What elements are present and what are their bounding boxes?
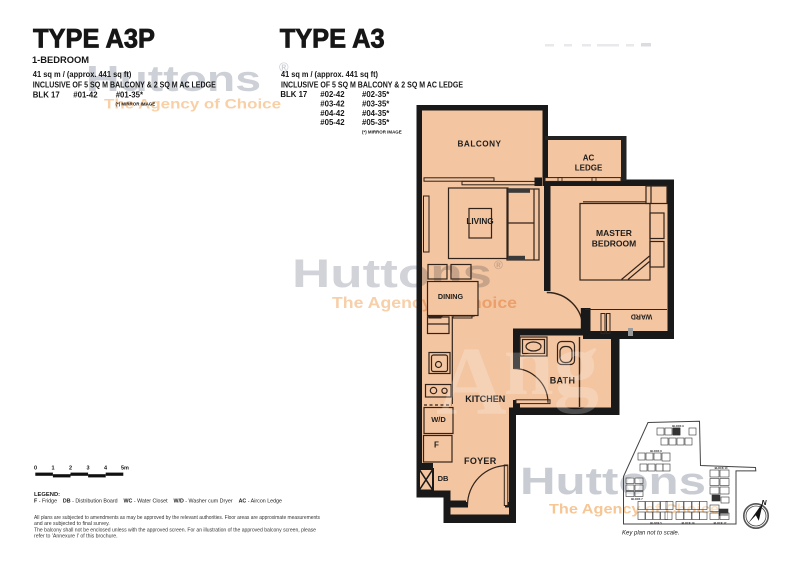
svg-text:#02-42: #02-42 [320,90,345,99]
svg-text:#05-35*: #05-35* [362,118,390,127]
svg-text:TYPE A3: TYPE A3 [280,24,385,54]
svg-text:#01-35*: #01-35* [116,90,144,99]
svg-text:F: F [434,441,439,450]
svg-text:BEDROOM: BEDROOM [592,239,636,249]
svg-text:FOYER: FOYER [464,456,497,466]
svg-text:BALCONY: BALCONY [458,140,502,149]
svg-text:0: 0 [34,466,37,472]
svg-text:DINING: DINING [438,292,464,301]
svg-text:The balcony shall not be enclo: The balcony shall not be enclosed unless… [34,527,316,533]
svg-text:2: 2 [69,466,72,472]
svg-text:LIVING: LIVING [466,217,493,226]
svg-text:1: 1 [52,466,55,472]
svg-text:®: ® [494,258,503,272]
svg-text:and are subjected to final sur: and are subjected to final survey. [34,521,110,527]
svg-text:BLOCK 19: BLOCK 19 [682,521,695,525]
svg-text:BLOCK 7: BLOCK 7 [631,497,643,501]
svg-text:#03-35*: #03-35* [362,99,390,108]
svg-text:BLOCK 5: BLOCK 5 [650,521,662,525]
svg-text:BLOCK 17: BLOCK 17 [714,521,727,525]
svg-text:F - Fridge DB - Distributio: F - Fridge DB - Distribution Board WC - … [34,498,282,504]
svg-text:DB: DB [438,474,449,483]
svg-text:LEGEND:: LEGEND: [34,492,60,498]
svg-text:#02-35*: #02-35* [362,90,390,99]
svg-text:Key plan not to scale.: Key plan not to scale. [622,531,679,537]
svg-text:INCLUSIVE OF 5 SQ M BALCONY &: INCLUSIVE OF 5 SQ M BALCONY & 2 SQ M AC … [281,81,463,90]
svg-text:1-BEDROOM: 1-BEDROOM [32,55,89,65]
svg-text:3: 3 [87,466,90,472]
svg-text:5m: 5m [121,466,129,472]
svg-text:#04-42: #04-42 [320,109,345,118]
svg-text:41 sq m / (approx. 441 sq ft): 41 sq m / (approx. 441 sq ft) [281,70,378,79]
svg-text:LEDGE: LEDGE [575,164,603,173]
svg-text:BLOCK 9: BLOCK 9 [672,424,684,428]
svg-text:MASTER: MASTER [596,228,632,238]
svg-text:BLOCK 10: BLOCK 10 [715,466,728,470]
svg-text:TYPE A3P: TYPE A3P [33,24,155,54]
svg-text:(*) MIRROR IMAGE: (*) MIRROR IMAGE [116,101,156,106]
svg-text:BLK 17: BLK 17 [33,90,60,99]
svg-text:#04-35*: #04-35* [362,109,390,118]
svg-text:All plans are subjected to ame: All plans are subjected to amendments as… [34,515,320,521]
svg-text:INCLUSIVE OF 5 SQ M BALCONY &: INCLUSIVE OF 5 SQ M BALCONY & 2 SQ M AC … [33,81,216,90]
svg-text:BLOCK 8: BLOCK 8 [650,449,662,453]
svg-text:#03-42: #03-42 [320,99,345,108]
svg-text:WARD: WARD [631,313,652,320]
svg-text:The Agency of Choice: The Agency of Choice [332,295,517,312]
svg-text:(*) MIRROR IMAGE: (*) MIRROR IMAGE [362,129,402,134]
svg-text:refer to 'Annexure I' of this: refer to 'Annexure I' of this brochure. [34,533,118,539]
svg-text:#05-42: #05-42 [320,118,345,127]
svg-text:#01-42: #01-42 [73,90,98,99]
svg-text:BLK 17: BLK 17 [280,90,307,99]
svg-text:41 sq m / (approx. 441 sq ft): 41 sq m / (approx. 441 sq ft) [33,70,132,79]
svg-text:Huttons: Huttons [520,461,706,503]
svg-text:AC: AC [583,154,595,163]
